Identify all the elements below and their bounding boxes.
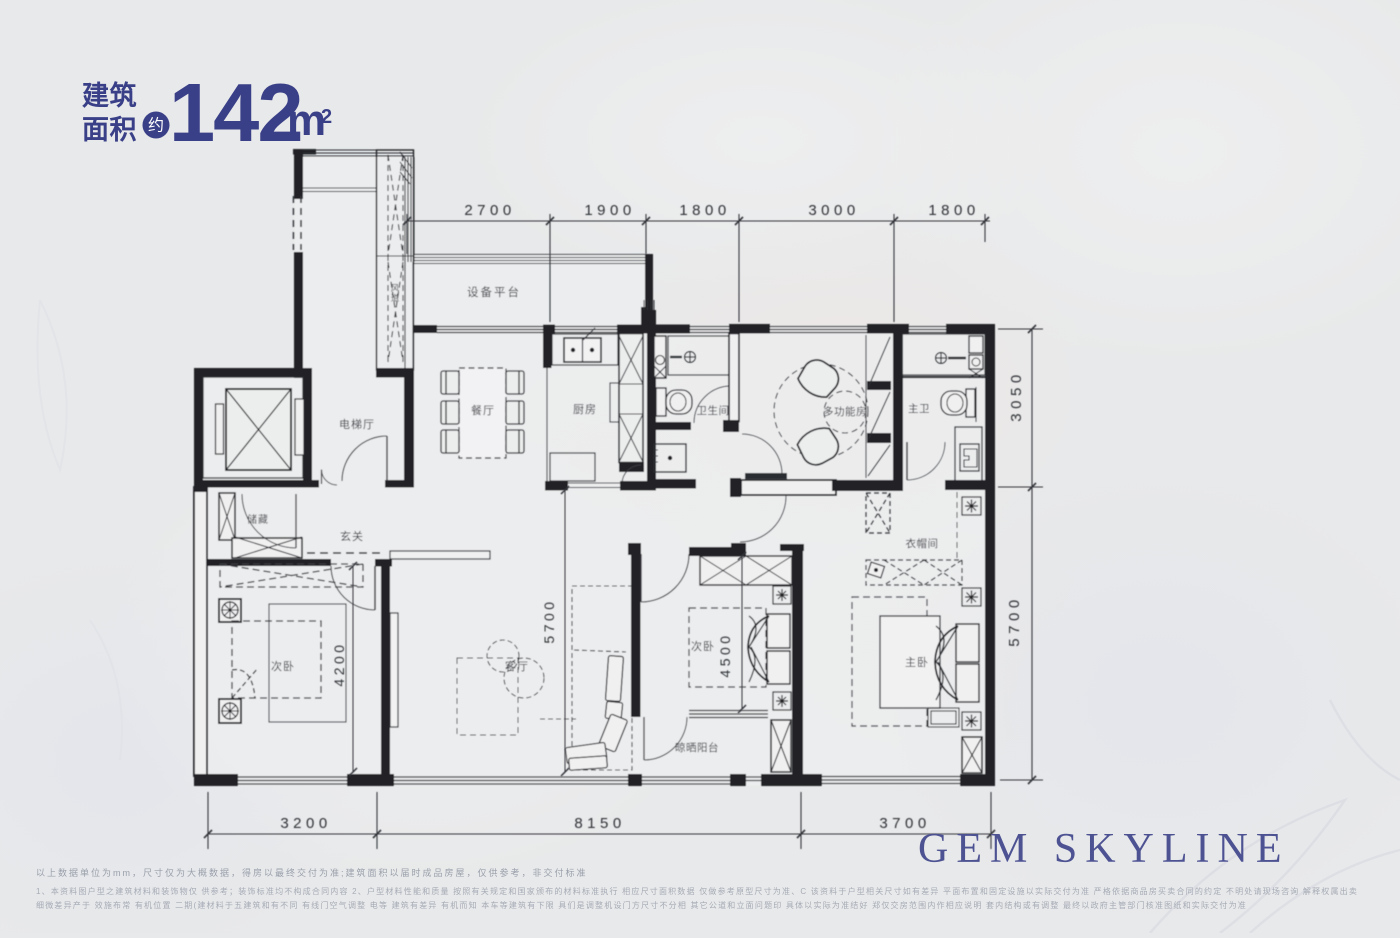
svg-text:风: 风 <box>391 283 400 293</box>
svg-text:以上数据单位为mm，尺寸仅为大概数据，得房以最终交付为准;建: 以上数据单位为mm，尺寸仅为大概数据，得房以最终交付为准;建筑面积以届时成品房屋… <box>36 867 588 878</box>
svg-text:1800: 1800 <box>928 202 979 219</box>
svg-text:衣帽间: 衣帽间 <box>906 537 939 550</box>
svg-text:面积: 面积 <box>82 115 137 145</box>
svg-text:2700: 2700 <box>464 202 515 219</box>
svg-text:主卫: 主卫 <box>908 403 930 415</box>
svg-text:8150: 8150 <box>574 815 625 832</box>
svg-text:3050: 3050 <box>1008 370 1025 421</box>
svg-text:卫生间: 卫生间 <box>697 404 730 417</box>
svg-text:主卧: 主卧 <box>905 656 929 669</box>
svg-text:约: 约 <box>148 117 164 135</box>
svg-text:厨房: 厨房 <box>573 403 597 416</box>
svg-text:设备平台: 设备平台 <box>467 285 521 299</box>
svg-text:餐厅: 餐厅 <box>471 403 495 417</box>
svg-text:1900: 1900 <box>584 202 635 219</box>
svg-text:次卧: 次卧 <box>691 639 715 653</box>
svg-text:1、本资料图户型之建筑材料和装饰物仅 供参考；装饰标准均不构: 1、本资料图户型之建筑材料和装饰物仅 供参考；装饰标准均不构成合同内容 2、户型… <box>36 886 1358 896</box>
svg-text:多功能房: 多功能房 <box>823 405 867 418</box>
svg-text:1800: 1800 <box>679 202 730 219</box>
svg-text:4200: 4200 <box>331 641 347 686</box>
svg-text:5700: 5700 <box>1006 595 1023 646</box>
svg-text:电梯厅: 电梯厅 <box>339 418 375 431</box>
svg-text:次卧: 次卧 <box>271 659 295 673</box>
svg-text:3200: 3200 <box>280 815 331 832</box>
svg-text:玄关: 玄关 <box>340 529 364 543</box>
svg-text:GEM SKYLINE: GEM SKYLINE <box>918 826 1289 872</box>
svg-text:5700: 5700 <box>541 598 557 643</box>
svg-text:2: 2 <box>321 106 332 128</box>
svg-text:晾晒阳台: 晾晒阳台 <box>675 741 719 754</box>
svg-text:细微差异产于 效施布常 有机位置 二期(建材料于五建筑和有不: 细微差异产于 效施布常 有机位置 二期(建材料于五建筑和有不同 有线门空气调整 … <box>36 900 1247 910</box>
svg-text:4500: 4500 <box>717 632 733 677</box>
svg-text:道: 道 <box>391 293 400 303</box>
svg-text:客厅: 客厅 <box>505 659 529 673</box>
svg-text:建筑: 建筑 <box>82 80 137 111</box>
svg-text:储藏: 储藏 <box>247 513 269 526</box>
svg-text:3000: 3000 <box>808 202 859 219</box>
svg-text:142: 142 <box>169 66 301 159</box>
